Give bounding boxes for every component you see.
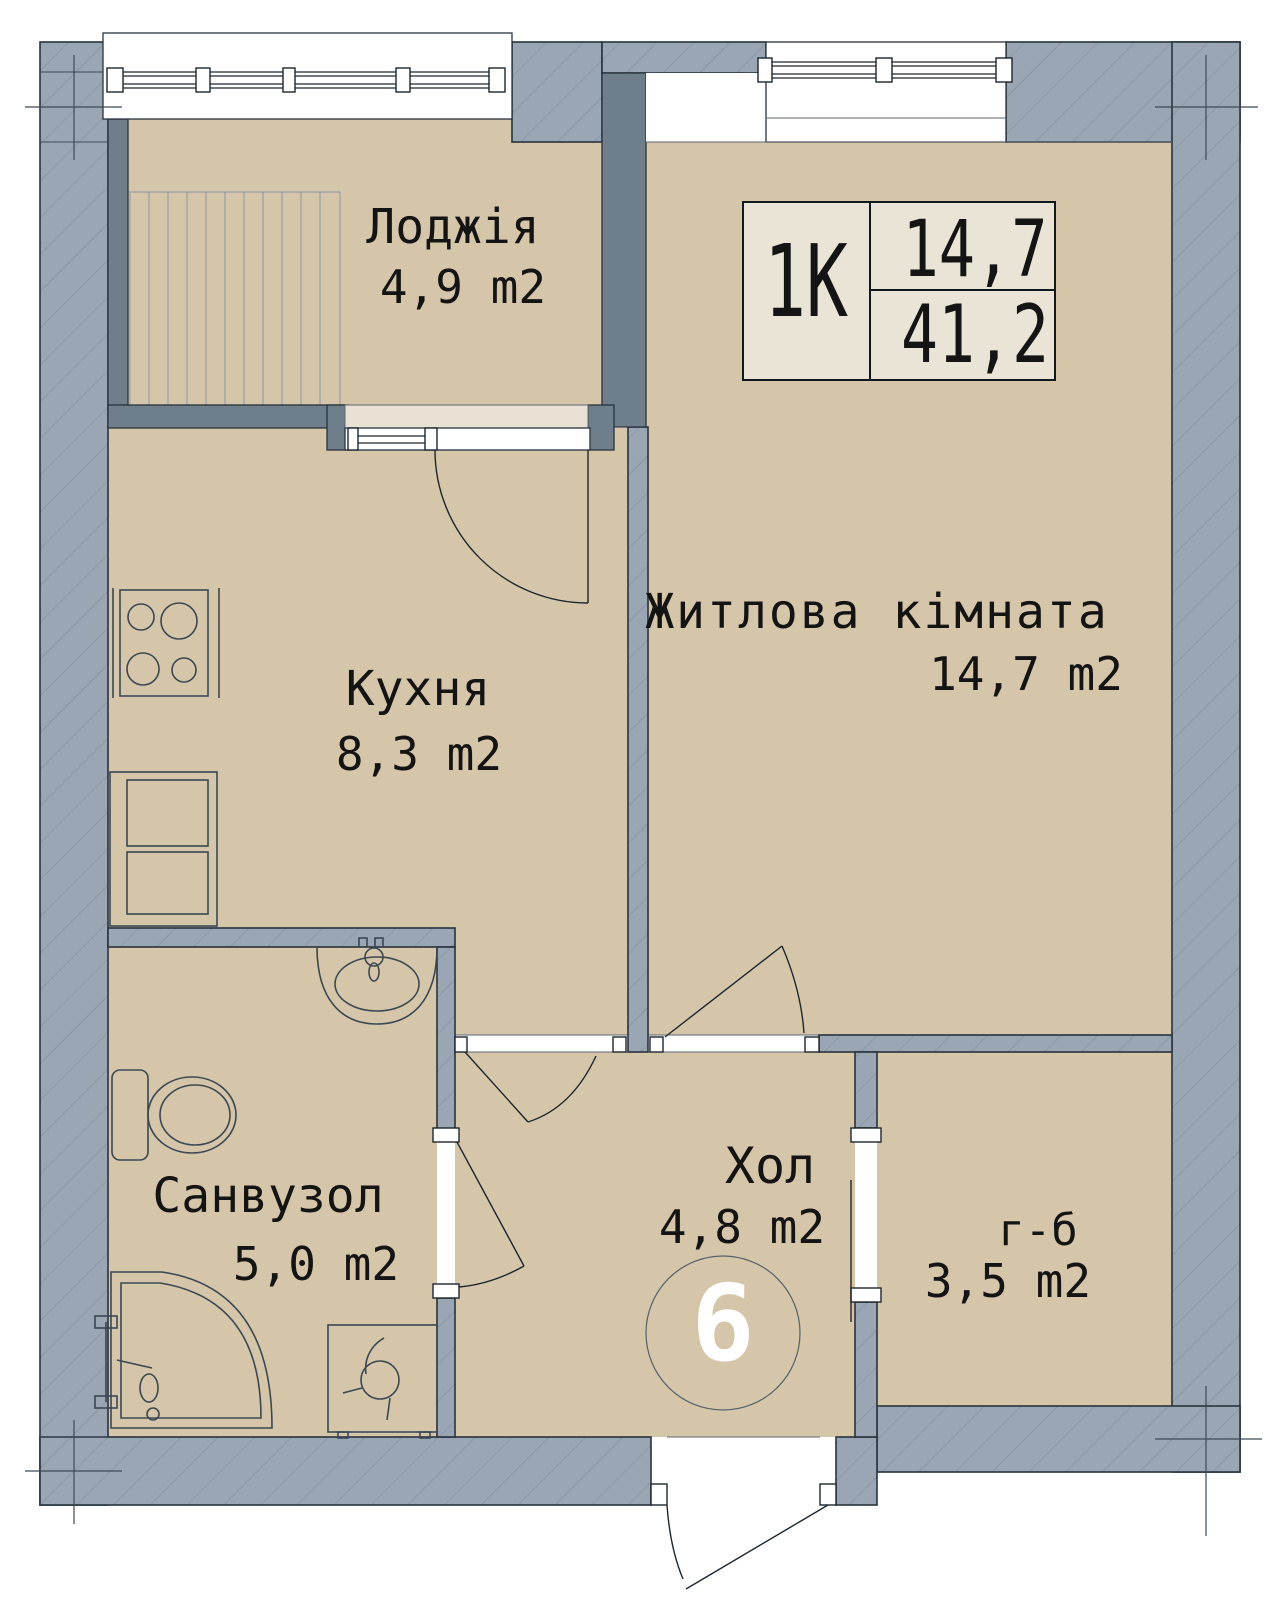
entrance-door-arc (667, 1505, 683, 1579)
loggia-window (103, 33, 512, 119)
loggia-parapet-cap-right (588, 405, 614, 450)
living-room-label: Житлова кімната (645, 584, 1108, 640)
floor-plan-page: 1K 14,7 41,2 Лоджія 4,9 m2 Житлова кімна… (0, 0, 1280, 1600)
bathroom-door-opening (437, 1146, 455, 1284)
wall-kitchen-living (628, 427, 648, 1052)
apartment-stamp: 1K 14,7 41,2 (743, 202, 1055, 381)
kitchen-label: Кухня (346, 661, 491, 717)
bathroom-label: Санвузол (152, 1168, 383, 1224)
wall-bathroom-right-upper (437, 947, 455, 1132)
stamp-type-label: 1K (764, 223, 848, 340)
entrance-door-leaf (686, 1505, 828, 1589)
entrance-door-jamb (820, 1484, 836, 1505)
loggia-window-mullion (196, 68, 210, 92)
stamp-total-area: 41,2 (901, 288, 1049, 381)
wall-top-mid-left (512, 42, 602, 142)
wall-wardrobe-top (819, 1035, 1172, 1052)
living-door-jamb (805, 1037, 819, 1052)
wall-bottom-entrance-right (836, 1437, 877, 1505)
loggia-parapet-left (108, 119, 128, 410)
loggia-window-jamb (107, 68, 123, 92)
wardrobe-door-jamb (851, 1288, 881, 1302)
loggia-parapet-right (602, 73, 646, 427)
hall-label: Хол (725, 1137, 815, 1195)
loggia-window-mullion (396, 68, 410, 92)
loggia-parapet-bottom (108, 405, 345, 428)
loggia-window-jamb (489, 68, 505, 92)
wardrobe-label: г-б (998, 1205, 1077, 1256)
bathroom-door-jamb (433, 1128, 459, 1142)
wall-hall-wardrobe-lower (855, 1302, 877, 1437)
loggia-window-mullion (283, 68, 295, 92)
entrance-door (651, 1437, 836, 1589)
entrance-door-jamb (651, 1484, 667, 1505)
wardrobe-door-opening (855, 1142, 877, 1288)
balcony-window-jamb (348, 428, 358, 450)
kitchen-area-label: 8,3 m2 (336, 727, 502, 781)
wall-hall-wardrobe-upper (855, 1052, 877, 1128)
loggia-area-label: 4,9 m2 (380, 260, 546, 314)
living-window-niche (766, 42, 1006, 142)
wardrobe-door-jamb (851, 1128, 881, 1142)
living-window-mullion (876, 58, 892, 82)
wall-bottom-left (40, 1437, 651, 1505)
wall-right (1172, 42, 1240, 1472)
hall-area-label: 4,8 m2 (659, 1200, 825, 1254)
living-door-jamb (650, 1037, 663, 1052)
kitchen-door-jamb (455, 1037, 467, 1052)
balcony-window-jamb (425, 428, 437, 450)
wall-left (40, 42, 108, 1505)
wall-top-mid-right (602, 42, 766, 73)
balcony-opening-band (345, 428, 590, 450)
wall-bathroom-right-lower (437, 1298, 455, 1437)
living-room-area-label: 14,7 m2 (929, 647, 1123, 701)
living-window-corner-niche (646, 73, 766, 142)
living-window-jamb (996, 58, 1012, 82)
wardrobe-area-label: 3,5 m2 (925, 1254, 1091, 1308)
bathroom-door-jamb (433, 1284, 459, 1298)
kitchen-door-jamb (613, 1037, 626, 1052)
bathroom-area-label: 5,0 m2 (233, 1237, 399, 1291)
living-window-jamb (758, 58, 772, 82)
stamp-living-area: 14,7 (903, 205, 1048, 295)
unit-number-text: 6 (691, 1263, 754, 1385)
floor-plan-drawing: 1K 14,7 41,2 Лоджія 4,9 m2 Житлова кімна… (0, 0, 1280, 1600)
loggia-label: Лоджія (366, 199, 539, 255)
wall-bathroom-top (108, 928, 455, 947)
balcony-windowsill (345, 405, 588, 428)
